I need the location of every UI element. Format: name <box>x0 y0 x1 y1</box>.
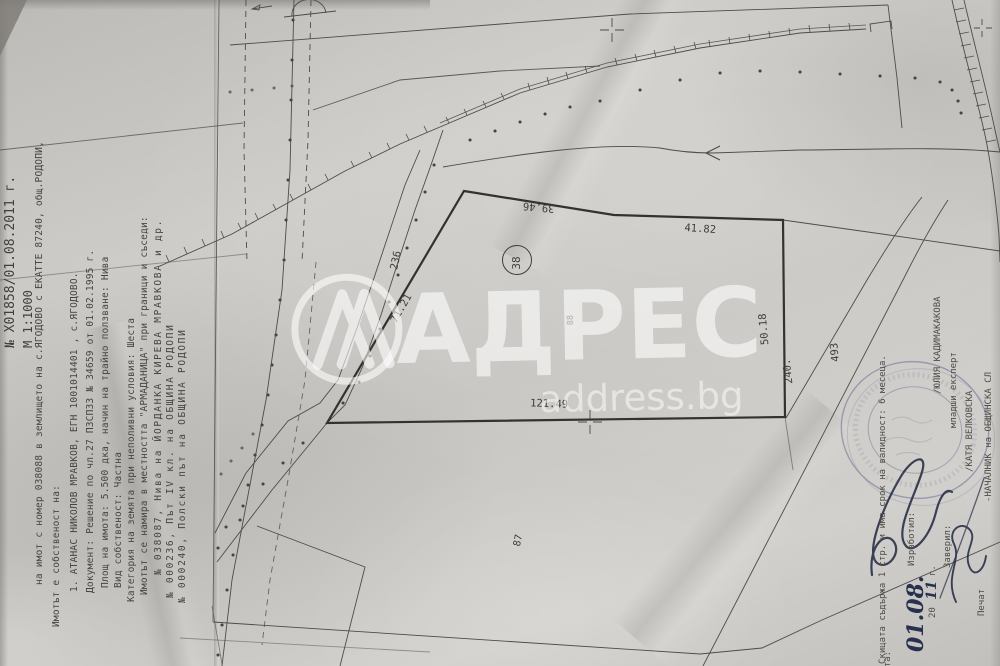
description-line: 1. АТАНАС НИКОЛОВ МРАВКОВ, ЕГН 100101440… <box>70 272 80 592</box>
description-line: на имот с номер 038088 в землището на с.… <box>35 141 45 585</box>
label-parcel-493: 493 <box>828 342 842 362</box>
handwritten-year: 11 <box>925 581 939 600</box>
description-line: Имотът се намира в местността "АРМАДАНИЦ… <box>140 216 150 595</box>
approved-title: -НАЧАЛНИК на ОБЩИНСКА СЛ <box>985 372 994 502</box>
embankment-line <box>160 23 866 266</box>
sketch-scale: М 1:1000 <box>22 290 34 348</box>
label-parcel-87: 87 <box>512 533 525 547</box>
dim-right: 50.18 <box>757 313 772 346</box>
sketch-number: № Х01858/01.08.2011 г. <box>4 176 17 348</box>
cadastral-map: 39.46 41.82 50.18 121.49 71.21 236 240. … <box>0 0 1000 666</box>
label-parcel-38: 38 <box>510 256 523 269</box>
photographed-cadastral-sketch: 39.46 41.82 50.18 121.49 71.21 236 240. … <box>0 0 1000 666</box>
dim-bottom: 121.49 <box>530 397 568 410</box>
prepared-name: /ЮЛИЯ КАДИМАКАКОВА <box>934 296 943 394</box>
description-line: Площ на имота: 5.500 дка, начин на трайн… <box>101 257 111 589</box>
year-printed: 20 <box>929 607 938 618</box>
boundary-lines <box>0 0 1000 666</box>
dim-top-right: 41.82 <box>684 222 716 236</box>
approved-label: Заверил: <box>944 525 953 568</box>
year-suffix: г. <box>929 565 938 576</box>
description-line: № 000240, Полски път на ОБЩИНА РОДОПИ <box>178 328 188 603</box>
approved-name: /КАТЯ ВЕЛКОВСКА <box>966 391 975 472</box>
seal-label: Печат <box>978 589 987 616</box>
description-line: Имотът е собственост на: <box>52 485 62 627</box>
prepared-title: младши експерт <box>950 352 959 428</box>
label-road-240: 240. <box>781 358 796 384</box>
label-road-236: 236 <box>388 250 404 271</box>
label-point-88: 88 <box>566 315 576 326</box>
description-line: Документ: Решение по чл.27 ПЗСПЗЗ № 3465… <box>86 250 96 593</box>
description-line: № 000236, Път IV кл. на ОБЩИНА РОДОПИ <box>166 323 176 598</box>
description-line: Вид собственост: Частна <box>114 452 124 588</box>
map-labels: 39.46 41.82 50.18 121.49 71.21 236 240. … <box>388 200 842 548</box>
dim-top-left: 39.46 <box>522 200 555 215</box>
point-markers <box>218 20 961 655</box>
description-line: Категория на земята при неполивни услови… <box>127 318 137 602</box>
dim-left: 71.21 <box>388 292 414 325</box>
description-line: № 038087, Нива на ЙОРДАНКА КИРЕВА МРАВКО… <box>154 219 164 575</box>
date-label: Дата: <box>884 651 893 666</box>
validity-note: Скицата съдържа 1 стр. и има срок на вал… <box>879 355 888 664</box>
prepared-label: Изработил: <box>908 512 917 566</box>
